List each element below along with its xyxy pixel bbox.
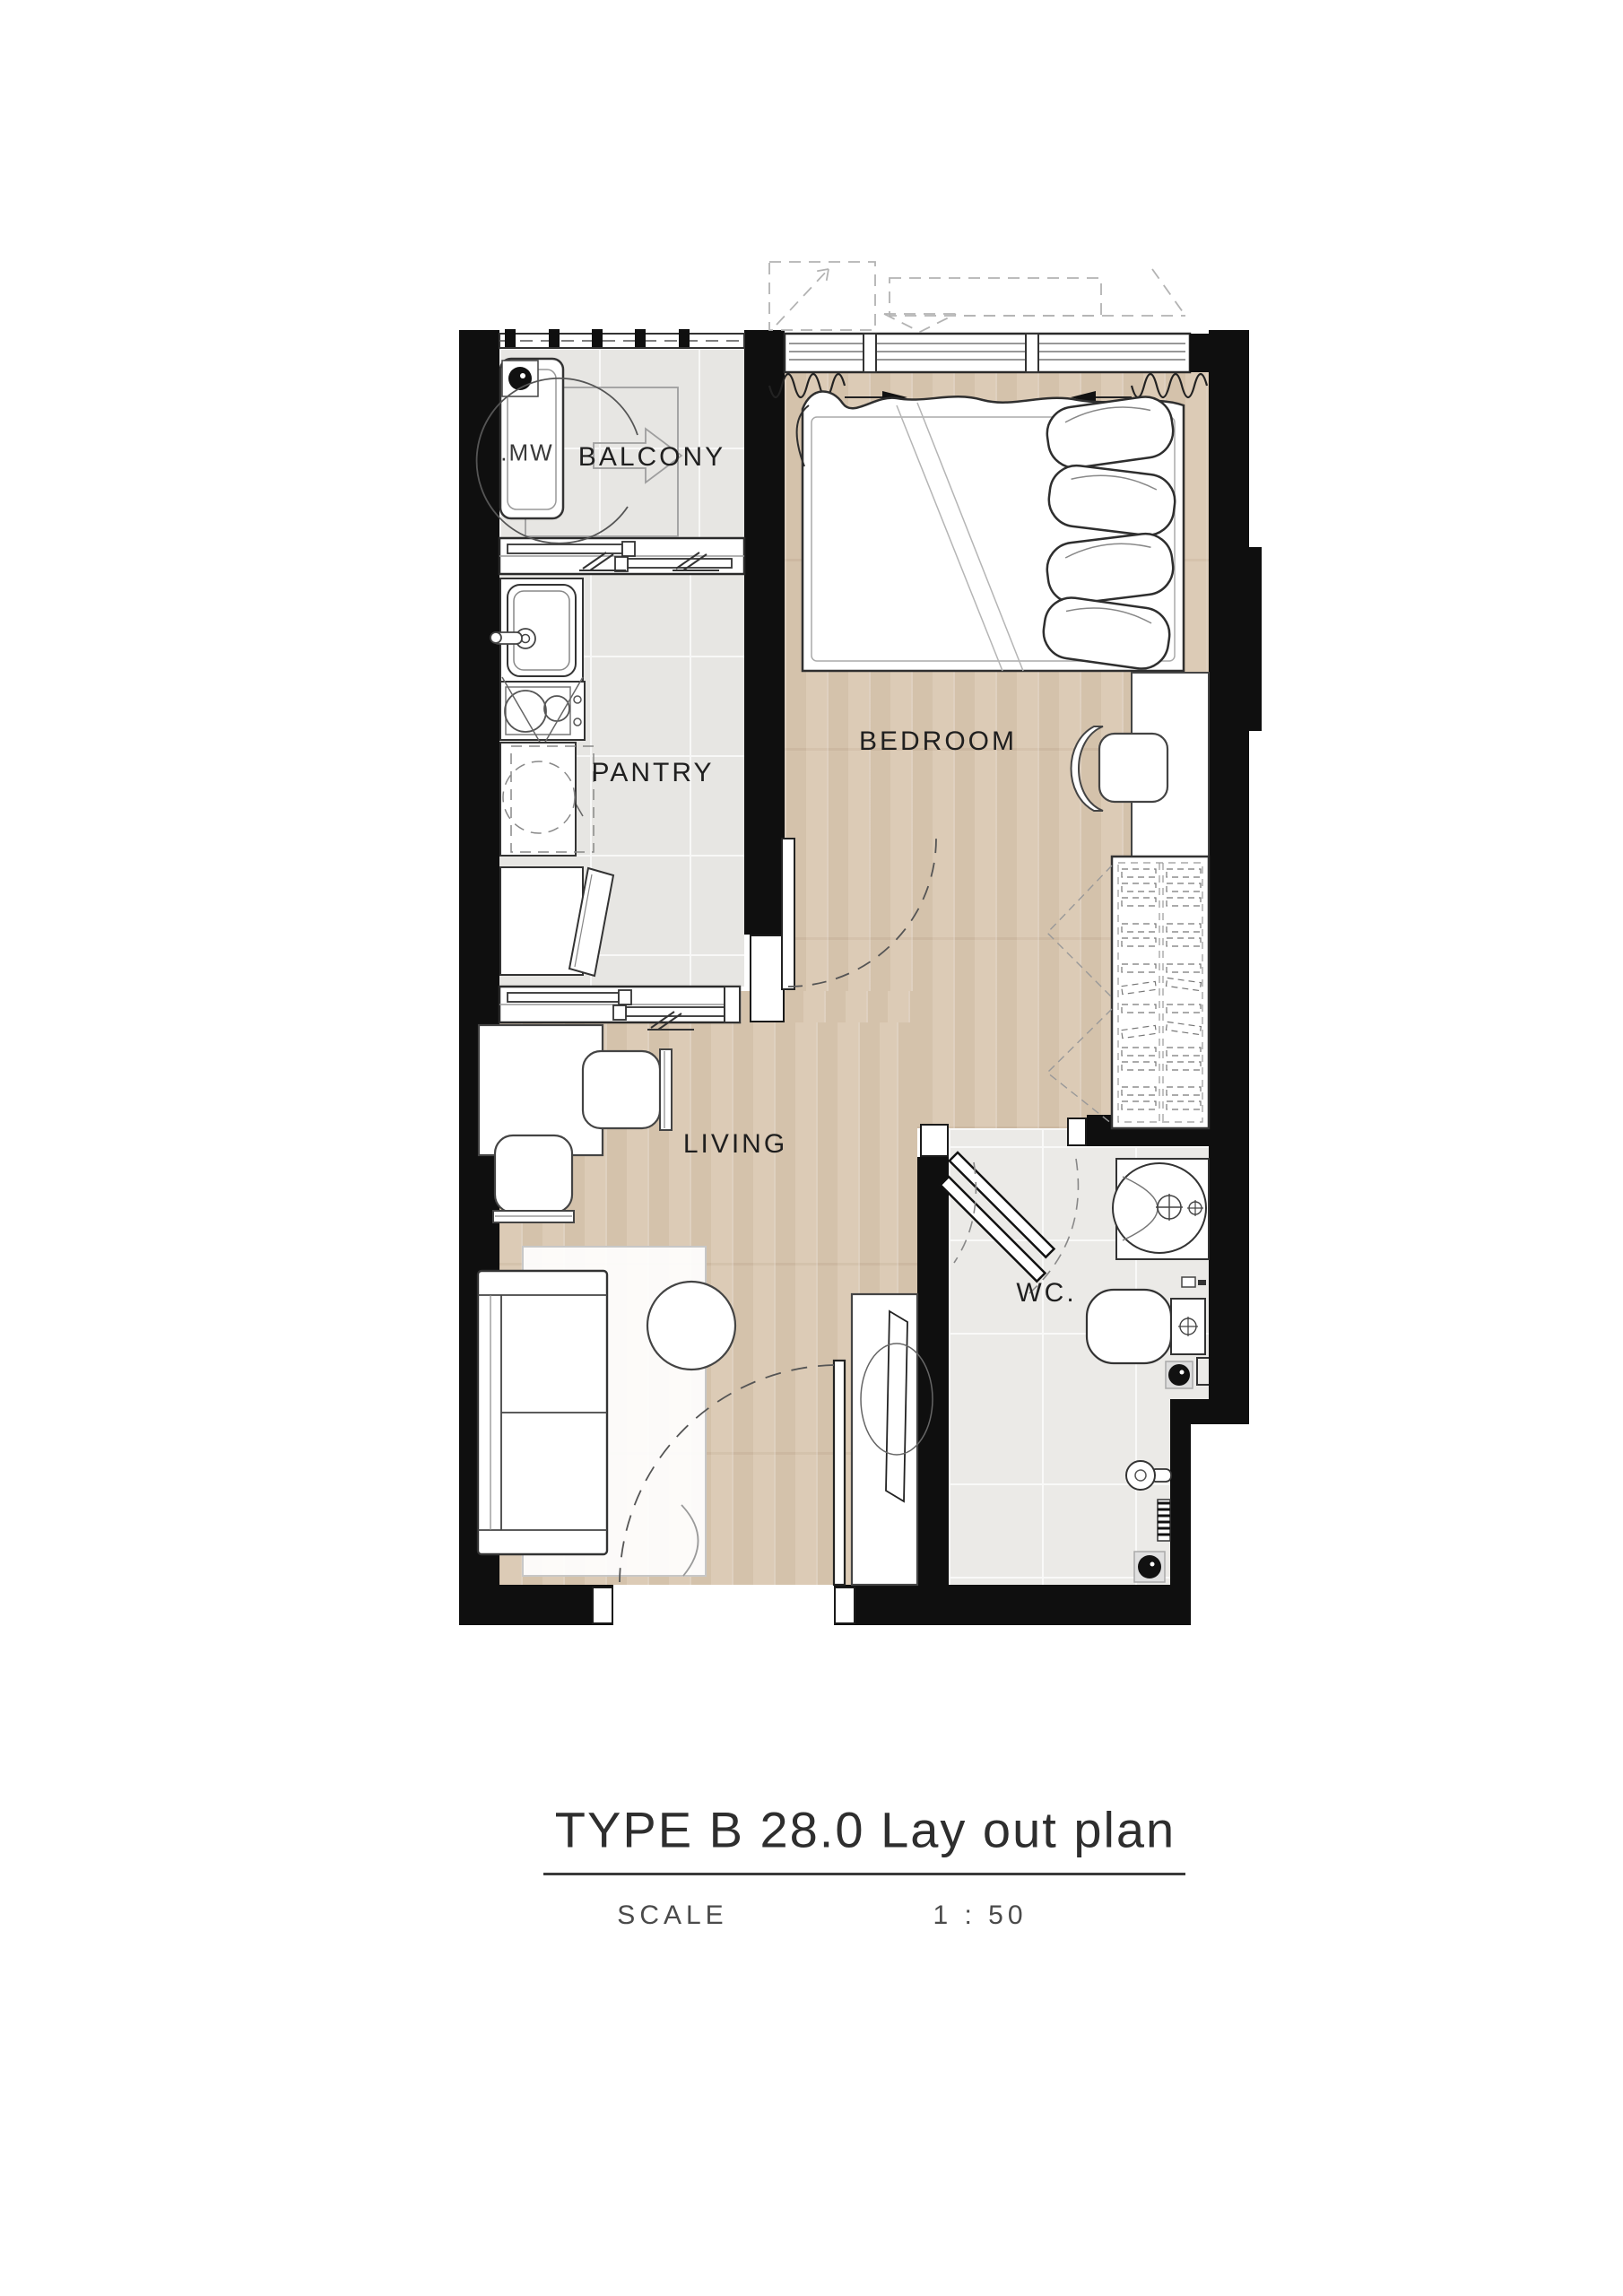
- wc-sink: [1113, 1159, 1209, 1259]
- shower-head: [1126, 1461, 1171, 1490]
- wc-label: WC.: [1016, 1278, 1076, 1309]
- wc-floor-drain-lower: [1134, 1552, 1165, 1582]
- balcony-railing: [499, 329, 744, 348]
- bedroom-window: [785, 334, 1209, 372]
- pantry-window: [499, 987, 740, 1022]
- wc-floor-drain-upper: [1166, 1358, 1209, 1388]
- bedroom-door: [782, 839, 936, 989]
- fridge: [500, 743, 594, 856]
- toilet: [1087, 1290, 1205, 1363]
- pantry-label: PANTRY: [592, 758, 715, 788]
- coffee-table: [647, 1282, 735, 1370]
- sofa: [478, 1271, 607, 1554]
- plan-linework: [0, 0, 1623, 2296]
- dining-chair-bottom: [493, 1135, 574, 1222]
- desk-chair: [1072, 726, 1168, 811]
- washing-machine-label: .MW: [500, 439, 553, 467]
- balcony-label: BALCONY: [578, 442, 725, 473]
- tv-icon: [886, 1311, 907, 1501]
- tv-console: [852, 1294, 933, 1585]
- wc-sliding-door: [941, 1152, 1079, 1293]
- living-label: LIVING: [683, 1129, 787, 1160]
- wardrobe-door-swings: [1047, 865, 1112, 1124]
- wc-wall-valve: [1182, 1277, 1206, 1287]
- plan-title: TYPE B 28.0 Lay out plan: [555, 1801, 1176, 1859]
- window-opening-symbols: [769, 262, 1185, 332]
- threshold-steps: [579, 552, 719, 1030]
- bed: [797, 391, 1184, 672]
- pantry-cabinet: [500, 867, 613, 976]
- balcony-window: [499, 538, 744, 574]
- title-underline: [543, 1873, 1185, 1875]
- scale-value: 1 : 50: [933, 1900, 1027, 1931]
- bedroom-label: BEDROOM: [859, 726, 1017, 757]
- dining-set: [479, 1025, 672, 1222]
- dining-chair-right: [583, 1049, 672, 1130]
- wardrobe: [1047, 857, 1209, 1128]
- kitchen-stove: [500, 682, 585, 740]
- scale-label: SCALE: [617, 1900, 727, 1931]
- wall-drain-grille: [1158, 1500, 1170, 1541]
- floor-plan-page: BALCONY .MW PANTRY BEDROOM LIVING WC. TY…: [0, 0, 1623, 2296]
